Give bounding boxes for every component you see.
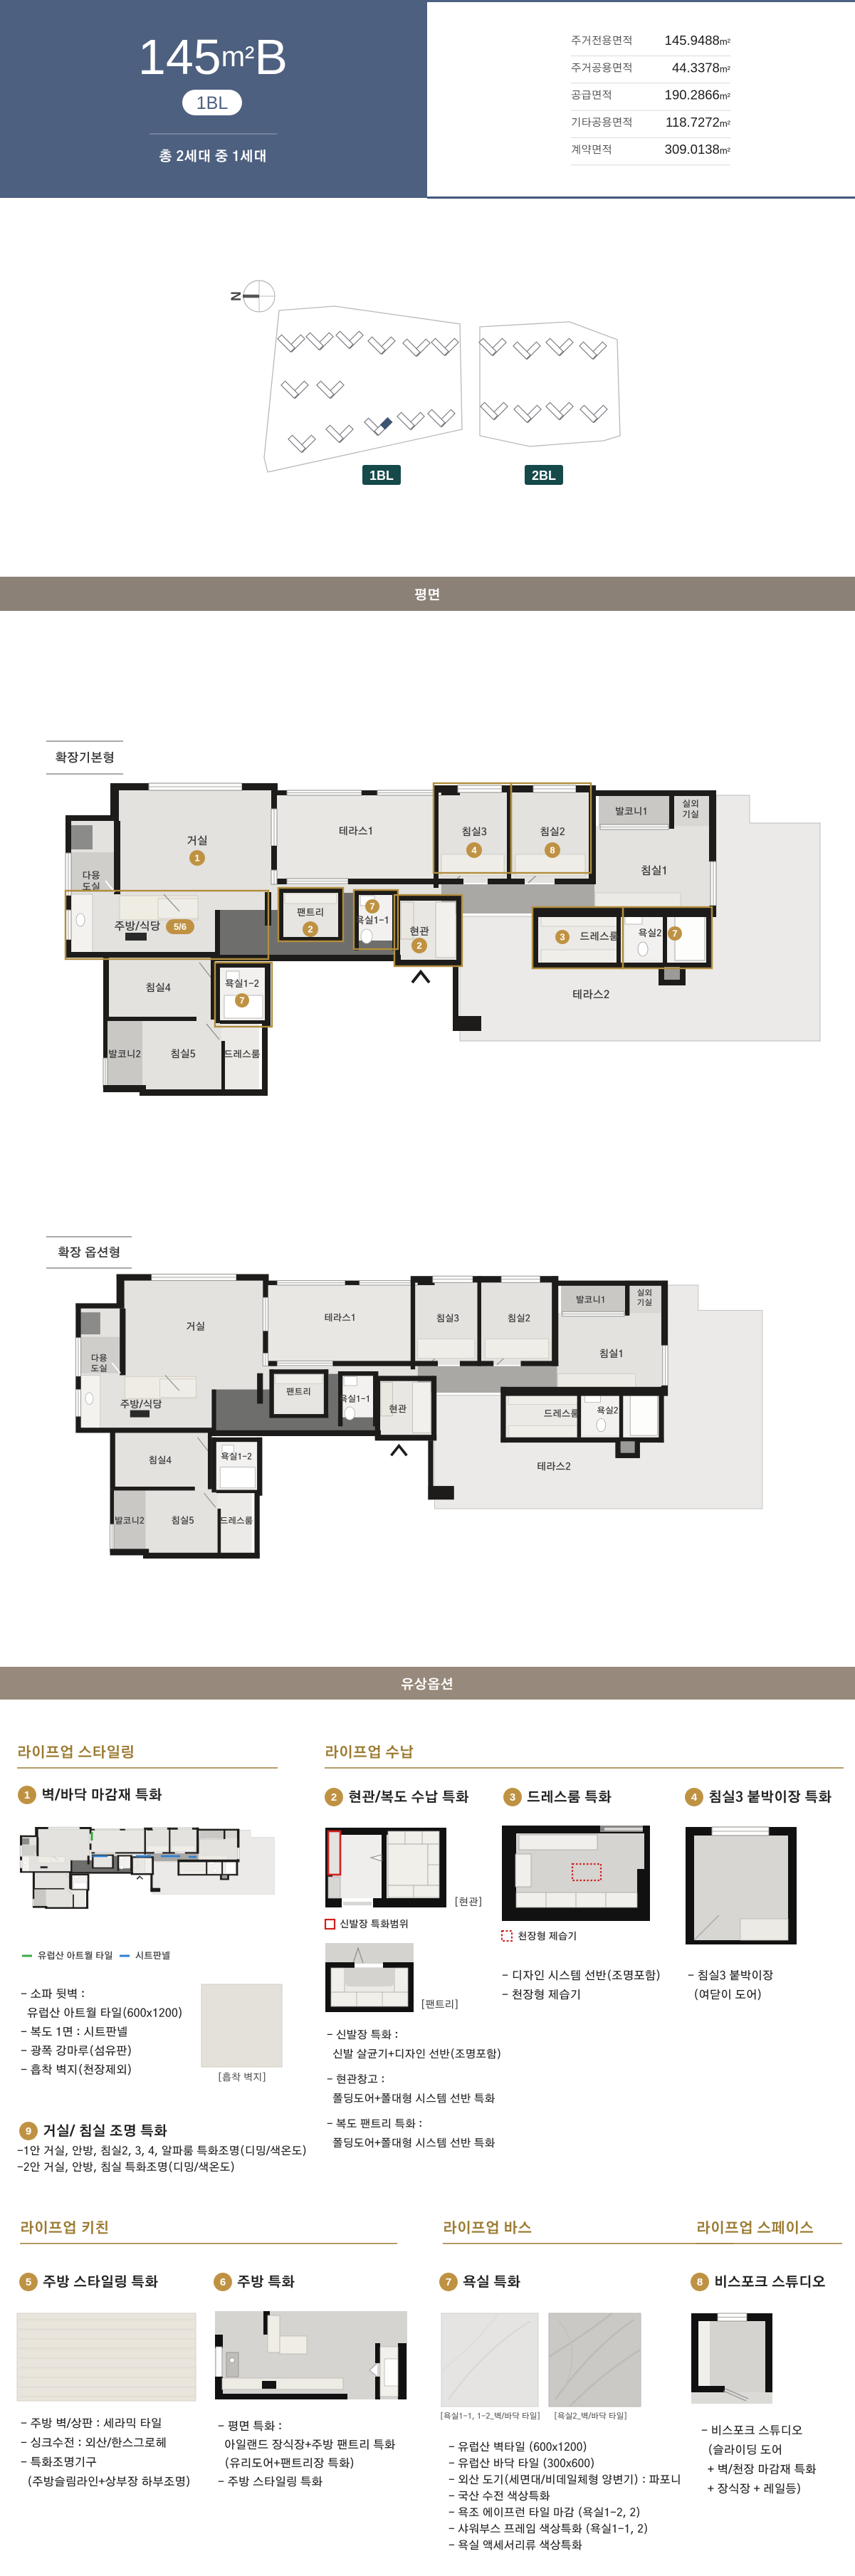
- svg-text:3: 3: [560, 932, 565, 943]
- svg-text:5: 5: [26, 2276, 31, 2288]
- svg-text:5/6: 5/6: [174, 921, 187, 932]
- svg-text:2: 2: [416, 941, 421, 951]
- svg-text:4: 4: [691, 1791, 698, 1803]
- svg-text:1BL: 1BL: [369, 468, 394, 483]
- svg-text:8: 8: [697, 2276, 703, 2288]
- svg-text:N: N: [229, 291, 244, 301]
- svg-text:2: 2: [308, 924, 313, 935]
- svg-text:9: 9: [26, 2125, 31, 2137]
- svg-text:1: 1: [194, 853, 199, 864]
- svg-text:6: 6: [220, 2276, 226, 2288]
- svg-text:7: 7: [672, 928, 677, 939]
- svg-text:4: 4: [471, 845, 477, 856]
- svg-text:145m²B: 145m²B: [138, 29, 288, 85]
- svg-text:1: 1: [24, 1789, 30, 1801]
- svg-text:1BL: 1BL: [196, 93, 229, 113]
- svg-text:2BL: 2BL: [532, 468, 556, 483]
- svg-text:7: 7: [369, 901, 374, 912]
- svg-text:7: 7: [446, 2276, 451, 2288]
- svg-text:8: 8: [550, 845, 555, 856]
- svg-text:7: 7: [239, 995, 244, 1006]
- svg-text:2: 2: [331, 1791, 337, 1803]
- svg-text:3: 3: [510, 1791, 515, 1803]
